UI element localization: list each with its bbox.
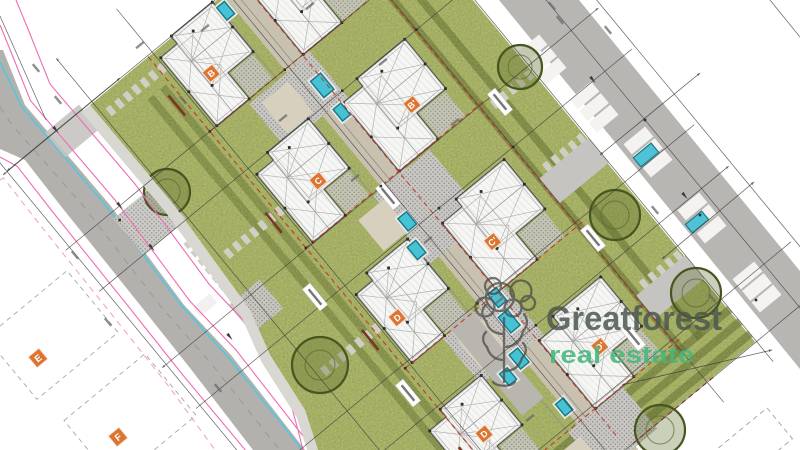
svg-text:real estate: real estate [549,342,694,369]
svg-text:Greatforest: Greatforest [546,300,722,338]
